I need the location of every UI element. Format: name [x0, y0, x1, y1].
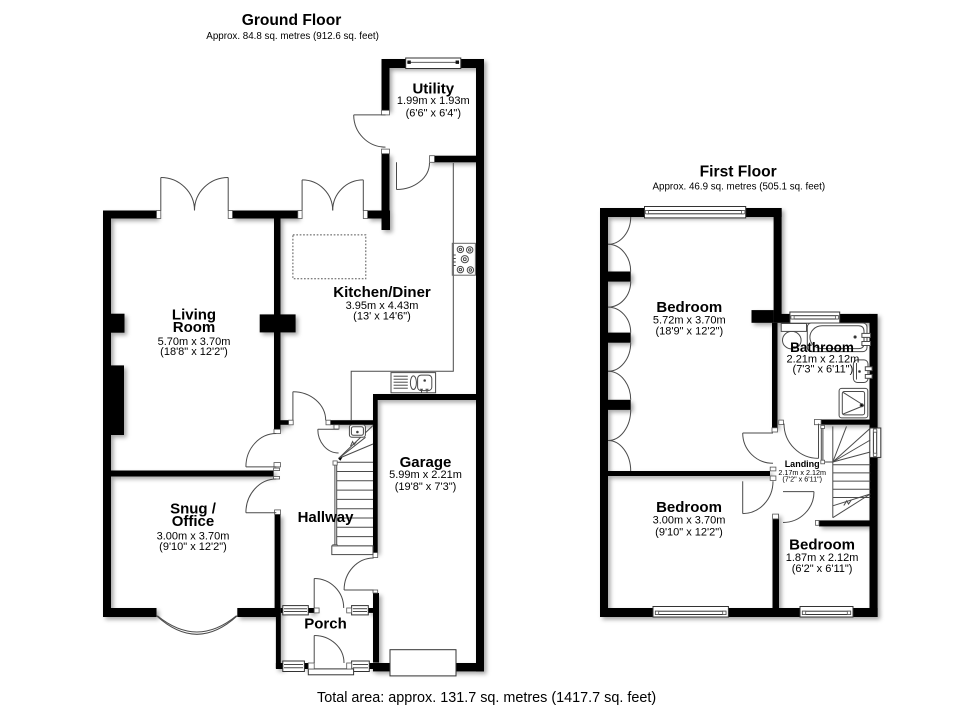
- svg-text:(7'2" x 6'11"): (7'2" x 6'11"): [782, 475, 822, 484]
- svg-text:(9'10" x 12'2"): (9'10" x 12'2"): [159, 541, 227, 553]
- svg-text:First Floor: First Floor: [700, 164, 777, 181]
- svg-text:5.99m x 2.21m: 5.99m x 2.21m: [389, 469, 462, 481]
- svg-text:(19'8" x 7'3"): (19'8" x 7'3"): [395, 481, 457, 493]
- svg-text:1.99m x 1.93m: 1.99m x 1.93m: [397, 95, 470, 107]
- svg-text:(6'6" x 6'4"): (6'6" x 6'4"): [406, 107, 461, 119]
- svg-text:(18'9" x 12'2"): (18'9" x 12'2"): [655, 326, 723, 338]
- svg-text:3.00m x 3.70m: 3.00m x 3.70m: [653, 515, 726, 527]
- svg-text:Hallway: Hallway: [298, 509, 355, 526]
- svg-text:Room: Room: [173, 319, 216, 336]
- svg-text:Office: Office: [172, 513, 215, 530]
- svg-text:Porch: Porch: [304, 616, 347, 633]
- svg-text:(6'2" x 6'11"): (6'2" x 6'11"): [792, 563, 853, 575]
- svg-text:5.72m x 3.70m: 5.72m x 3.70m: [653, 314, 726, 326]
- svg-text:Total area: approx. 131.7 sq.: Total area: approx. 131.7 sq. metres (14…: [317, 690, 656, 706]
- svg-text:(9'10" x 12'2"): (9'10" x 12'2"): [655, 527, 723, 539]
- svg-text:(7'3" x 6'11"): (7'3" x 6'11"): [793, 363, 854, 375]
- svg-text:Ground Floor: Ground Floor: [242, 12, 342, 29]
- svg-text:Bedroom: Bedroom: [656, 499, 722, 516]
- svg-text:(18'8" x 12'2"): (18'8" x 12'2"): [160, 346, 228, 358]
- svg-text:Approx. 84.8 sq. metres (912.6: Approx. 84.8 sq. metres (912.6 sq. feet): [206, 31, 379, 42]
- svg-text:(13' x 14'6"): (13' x 14'6"): [353, 310, 411, 322]
- svg-text:Approx. 46.9 sq. metres (505.1: Approx. 46.9 sq. metres (505.1 sq. feet): [652, 181, 825, 192]
- svg-text:Kitchen/Diner: Kitchen/Diner: [333, 284, 431, 301]
